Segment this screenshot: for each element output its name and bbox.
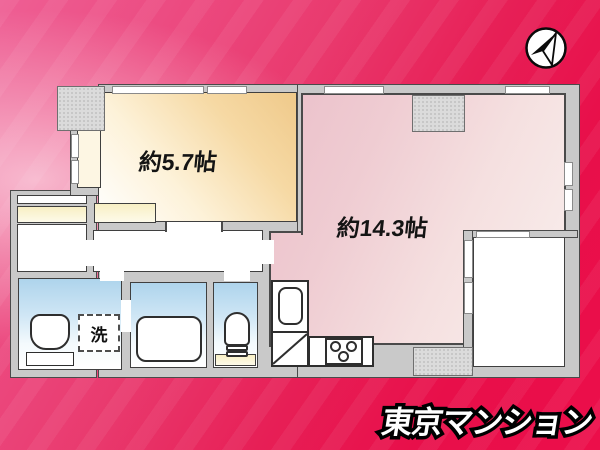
laundry-machine-space: 洗 xyxy=(78,314,120,352)
corridor-floor xyxy=(93,230,263,272)
window-alcove-west-1 xyxy=(71,134,79,158)
balcony-window-left-2 xyxy=(464,282,473,314)
void-block-top-left xyxy=(57,86,105,131)
door-western-jamb-2 xyxy=(221,222,223,232)
living-room-label: 約14.3帖 xyxy=(335,209,429,243)
balcony-floor xyxy=(473,237,565,367)
door-corridor-living xyxy=(262,240,274,264)
balcony-window-top xyxy=(476,231,530,238)
entry-shoe-counter xyxy=(17,195,87,204)
western-room-alcove xyxy=(77,130,101,188)
brand-logo-text: 東京マンション xyxy=(353,402,596,444)
window-top-west-2 xyxy=(207,86,247,94)
kitchen-sink xyxy=(278,287,303,325)
living-room-outline-pocket-top xyxy=(269,231,303,233)
entry-closet xyxy=(17,206,87,223)
laundry-label: 洗 xyxy=(91,321,108,346)
pillar-top-center xyxy=(412,95,465,132)
stove-burner-3 xyxy=(338,351,349,362)
window-alcove-west-2 xyxy=(71,160,79,184)
door-washroom-bathroom xyxy=(121,300,131,332)
counter-diagonal-edge xyxy=(273,333,307,365)
stove-burner-1 xyxy=(330,341,341,352)
stove-burner-2 xyxy=(346,341,357,352)
door-western-jamb-1 xyxy=(165,222,167,232)
door-entry-corridor xyxy=(86,240,94,266)
living-room-outline-divider xyxy=(301,93,303,235)
north-arrow-icon xyxy=(524,26,568,70)
floorplan-advert: 洗 約5.7帖 約14.3帖 東京マンション 東京マンション xyxy=(0,0,600,450)
kitchen-counter-corner xyxy=(271,331,309,367)
window-top-living-1 xyxy=(324,86,384,94)
entry-hall-floor xyxy=(17,224,87,272)
bathtub xyxy=(136,316,202,362)
washroom-step xyxy=(26,352,74,366)
western-room-label: 約5.7帖 xyxy=(137,143,219,177)
compass xyxy=(524,26,568,70)
balcony-window-left-1 xyxy=(464,240,473,278)
washbasin xyxy=(30,314,70,350)
pillar-bottom-right xyxy=(413,347,473,376)
door-toilet xyxy=(224,271,250,281)
window-east-1 xyxy=(564,162,573,186)
brand-logo: 東京マンション 東京マンション xyxy=(353,402,596,444)
door-western-room xyxy=(165,222,223,232)
door-washroom xyxy=(100,271,124,281)
toilet-base-2 xyxy=(226,351,248,357)
window-top-west-1 xyxy=(112,86,204,94)
toilet-bowl xyxy=(224,312,250,346)
hall-closet xyxy=(94,203,156,223)
window-east-2 xyxy=(564,189,573,211)
window-top-living-2 xyxy=(505,86,550,94)
